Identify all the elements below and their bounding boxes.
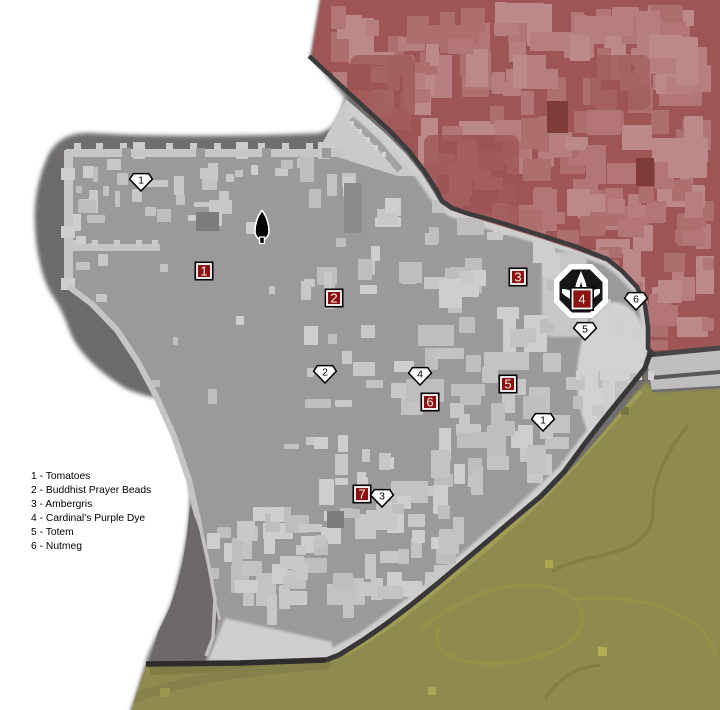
svg-text:3: 3 — [514, 270, 521, 285]
svg-text:5 - Totem: 5 - Totem — [31, 527, 74, 538]
svg-text:3: 3 — [379, 491, 385, 503]
svg-text:5: 5 — [504, 377, 511, 392]
svg-text:1 - Tomatoes: 1 - Tomatoes — [31, 471, 90, 482]
svg-text:4: 4 — [578, 292, 585, 307]
svg-text:2 - Buddhist Prayer Beads: 2 - Buddhist Prayer Beads — [31, 485, 151, 496]
svg-text:2: 2 — [330, 291, 337, 306]
svg-text:1: 1 — [138, 175, 144, 187]
svg-text:6: 6 — [633, 294, 639, 306]
svg-text:5: 5 — [582, 324, 588, 336]
svg-text:4: 4 — [417, 369, 423, 381]
svg-text:4 - Cardinal's Purple Dye: 4 - Cardinal's Purple Dye — [31, 513, 145, 524]
svg-text:1: 1 — [540, 415, 546, 427]
svg-text:7: 7 — [358, 487, 365, 502]
svg-text:2: 2 — [322, 367, 328, 379]
svg-text:1: 1 — [200, 264, 207, 279]
svg-text:6 - Nutmeg: 6 - Nutmeg — [31, 541, 82, 552]
svg-text:6: 6 — [426, 395, 433, 410]
svg-text:3 - Ambergris: 3 - Ambergris — [31, 499, 92, 510]
